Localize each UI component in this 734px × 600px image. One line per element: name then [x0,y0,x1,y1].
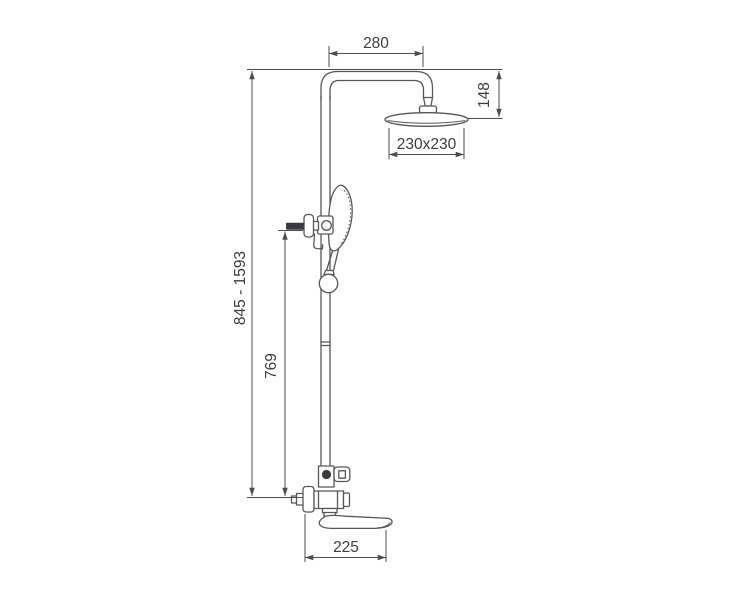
dim-hand-shower-height: 769 [263,231,303,497]
hand-shower [319,185,352,293]
dim-label-spout-reach: 225 [333,539,359,556]
dim-label-column-height: 845 - 1593 [232,251,249,325]
bracket-handle-pin [286,223,305,230]
dimension-annotations: 845 - 1593 769 280 148 [232,35,503,562]
shower-arm [321,72,433,101]
hose-connector-ball [319,274,337,292]
dim-label-head-size: 230x230 [397,136,457,153]
drawing-canvas: 845 - 1593 769 280 148 [0,0,734,600]
dim-column-height: 845 - 1593 [232,71,303,498]
shower-column-technical-drawing: 845 - 1593 769 280 148 [0,0,734,600]
hand-shower-handle [327,250,339,271]
dim-label-arm-reach: 280 [363,35,389,52]
dim-label-hand-shower-height: 769 [263,353,280,379]
tub-spout [319,515,392,528]
mixer-valve-body [292,487,350,517]
bracket-knob [304,215,314,238]
slider-bracket [286,215,333,249]
dim-arm-reach: 280 [329,35,423,67]
valve-end-cap [344,493,350,507]
dim-label-head-drop: 148 [476,82,493,108]
valve-flange [303,487,314,513]
diverter-handle [334,467,350,482]
diverter [319,466,350,487]
dim-head-size: 230x230 [389,128,464,159]
overhead-shower-head [385,113,468,127]
dim-head-drop: 148 [467,71,503,119]
head-connector [420,98,437,114]
diverter-button [322,470,331,479]
valve-stem [297,494,304,506]
